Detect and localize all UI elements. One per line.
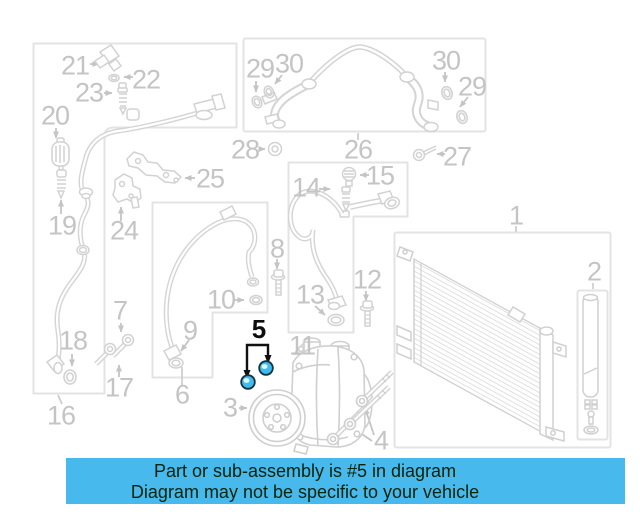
part-callout-15: 15 [366, 163, 394, 190]
part-callout-21: 21 [61, 53, 89, 80]
part-callout-28: 28 [231, 137, 259, 164]
caption-line-2: Diagram may not be specific to your vehi… [66, 482, 544, 503]
part-callout-29-right: 29 [458, 74, 486, 101]
part-callout-29-left: 29 [246, 56, 274, 83]
caption-text: Part or sub-assembly is #5 in diagram Di… [66, 458, 625, 504]
part-callout-20: 20 [41, 103, 69, 130]
part-callout-6: 6 [175, 382, 189, 409]
part-callout-8: 8 [270, 236, 284, 263]
diagram-caption-banner: Part or sub-assembly is #5 in diagram Di… [66, 458, 625, 504]
part-callout-13: 13 [296, 282, 324, 309]
callout-layer: 1234567891011121314151617181920212223242… [0, 0, 640, 512]
part-callout-19: 19 [48, 213, 76, 240]
part-callout-26: 26 [344, 137, 372, 164]
part-callout-3: 3 [223, 395, 237, 422]
part-callout-18: 18 [59, 328, 87, 355]
part-callout-2: 2 [587, 259, 601, 286]
part-callout-7: 7 [113, 298, 127, 325]
part-callout-5: 5 [252, 316, 266, 342]
part-callout-10: 10 [207, 287, 235, 314]
part-callout-22: 22 [132, 67, 160, 94]
part-callout-25: 25 [196, 166, 224, 193]
part-callout-30-left: 30 [275, 51, 303, 78]
part-callout-17: 17 [105, 375, 133, 402]
part-callout-24: 24 [110, 218, 138, 245]
part-callout-16: 16 [47, 403, 75, 430]
part-callout-12: 12 [353, 267, 381, 294]
part-callout-14: 14 [292, 175, 320, 202]
caption-line-1: Part or sub-assembly is #5 in diagram [66, 461, 544, 482]
part-callout-11: 11 [289, 333, 315, 360]
part-callout-27: 27 [443, 144, 471, 171]
part-callout-30-right: 30 [432, 48, 460, 75]
part-callout-4: 4 [374, 428, 388, 455]
part-callout-1: 1 [509, 203, 523, 230]
part-callout-9: 9 [183, 318, 197, 345]
part-callout-23: 23 [75, 80, 103, 107]
parts-diagram: 1234567891011121314151617181920212223242… [0, 0, 640, 512]
